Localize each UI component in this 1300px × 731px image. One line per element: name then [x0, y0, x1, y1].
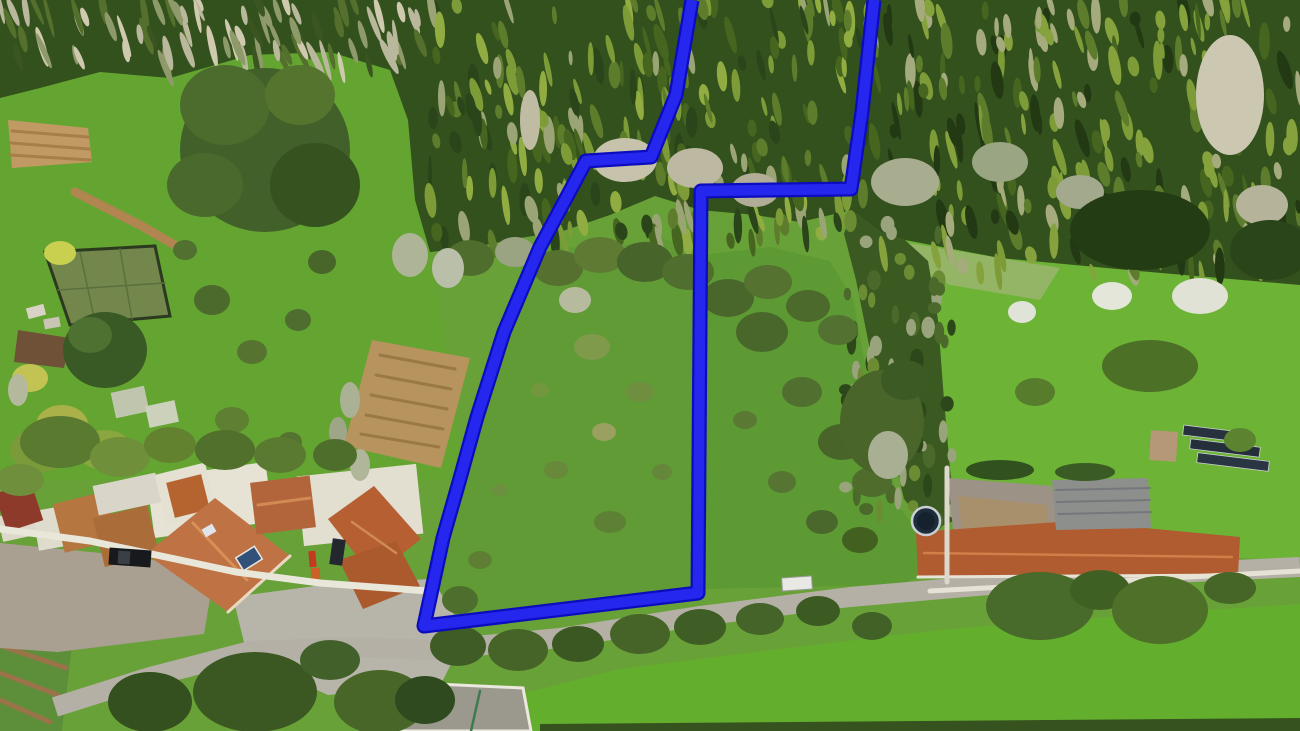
tree	[173, 240, 197, 260]
parcel-bush	[574, 334, 610, 360]
tree-above-houses	[20, 416, 100, 468]
bare-tree	[520, 90, 540, 150]
bare-tree	[8, 374, 28, 406]
bare-tree	[972, 142, 1028, 182]
yellow-bush	[44, 241, 76, 265]
water-tank-shade	[917, 512, 935, 530]
bare-tree	[559, 287, 591, 313]
forest-edge-tree	[744, 265, 792, 299]
scrub-patch	[1224, 428, 1256, 452]
tree	[180, 65, 270, 145]
bottom-tree	[395, 676, 455, 724]
forest-shadow	[1070, 190, 1210, 270]
roadside-tree	[674, 609, 726, 645]
tree	[270, 143, 360, 227]
parcel-bush	[594, 511, 626, 533]
parcel-bush	[626, 382, 654, 402]
tan-shed	[1149, 430, 1178, 462]
roadside-tree	[736, 603, 784, 635]
bare-tree	[340, 382, 360, 418]
scrub-patch	[1015, 378, 1055, 406]
red-cabinet	[308, 551, 316, 568]
tree	[733, 411, 757, 429]
bare-tree	[392, 233, 428, 277]
parcel-bush	[592, 423, 616, 441]
tall-light-tree	[1196, 35, 1264, 155]
blossom-tree	[1092, 282, 1132, 310]
roadside-tree	[796, 596, 840, 626]
tree	[468, 551, 492, 569]
hedge	[966, 460, 1034, 480]
roadside-tree	[552, 626, 604, 662]
tree	[782, 377, 822, 407]
forest-edge-tree	[786, 290, 830, 322]
bare-tree	[432, 248, 464, 288]
tree	[167, 153, 243, 217]
tree-above-houses	[254, 437, 306, 473]
parcel-bush	[544, 461, 568, 479]
bare-tree	[871, 158, 939, 206]
bottom-tree	[108, 672, 192, 731]
tree	[736, 312, 788, 352]
tree	[806, 510, 838, 534]
hedge	[1055, 463, 1115, 481]
car-windshield	[118, 551, 131, 565]
parcel-bush	[652, 464, 672, 480]
white-car-on-road	[782, 576, 813, 591]
scrub-patch	[1102, 340, 1198, 392]
tree	[285, 309, 311, 331]
tree-above-houses	[195, 430, 255, 470]
tree	[308, 250, 336, 274]
forest-edge-tree	[818, 315, 858, 345]
tree	[215, 407, 249, 433]
aerial-photo-view	[0, 0, 1300, 731]
roadside-tree	[610, 614, 670, 654]
tree-above-houses	[144, 427, 196, 463]
parcel-bush	[531, 383, 549, 397]
orange-crate	[311, 568, 321, 580]
bare-tree	[868, 431, 908, 479]
roadside-tree	[1204, 572, 1256, 604]
tree	[442, 586, 478, 614]
tree	[68, 317, 112, 353]
bare-tree	[667, 148, 723, 188]
tree	[194, 285, 230, 315]
roadside-tree	[488, 629, 548, 671]
tree	[237, 340, 267, 364]
bare-tree	[1236, 185, 1288, 225]
roadside-tree	[852, 612, 892, 640]
roadside-tree	[430, 626, 486, 666]
tree	[265, 65, 335, 125]
gray-corrugated-roof	[1052, 478, 1151, 530]
tree	[881, 360, 929, 400]
bottom-tree	[193, 652, 317, 731]
aerial-photo-canvas	[0, 0, 1300, 731]
parcel-bush	[492, 484, 508, 496]
tree-above-houses	[90, 437, 150, 477]
blossom-tree	[1172, 278, 1228, 314]
tree-above-houses	[313, 439, 357, 471]
bottom-tree	[300, 640, 360, 680]
tree	[768, 471, 796, 493]
big-roadside-tree	[1112, 576, 1208, 644]
blossom-tree	[1008, 301, 1036, 323]
tree	[842, 527, 878, 553]
